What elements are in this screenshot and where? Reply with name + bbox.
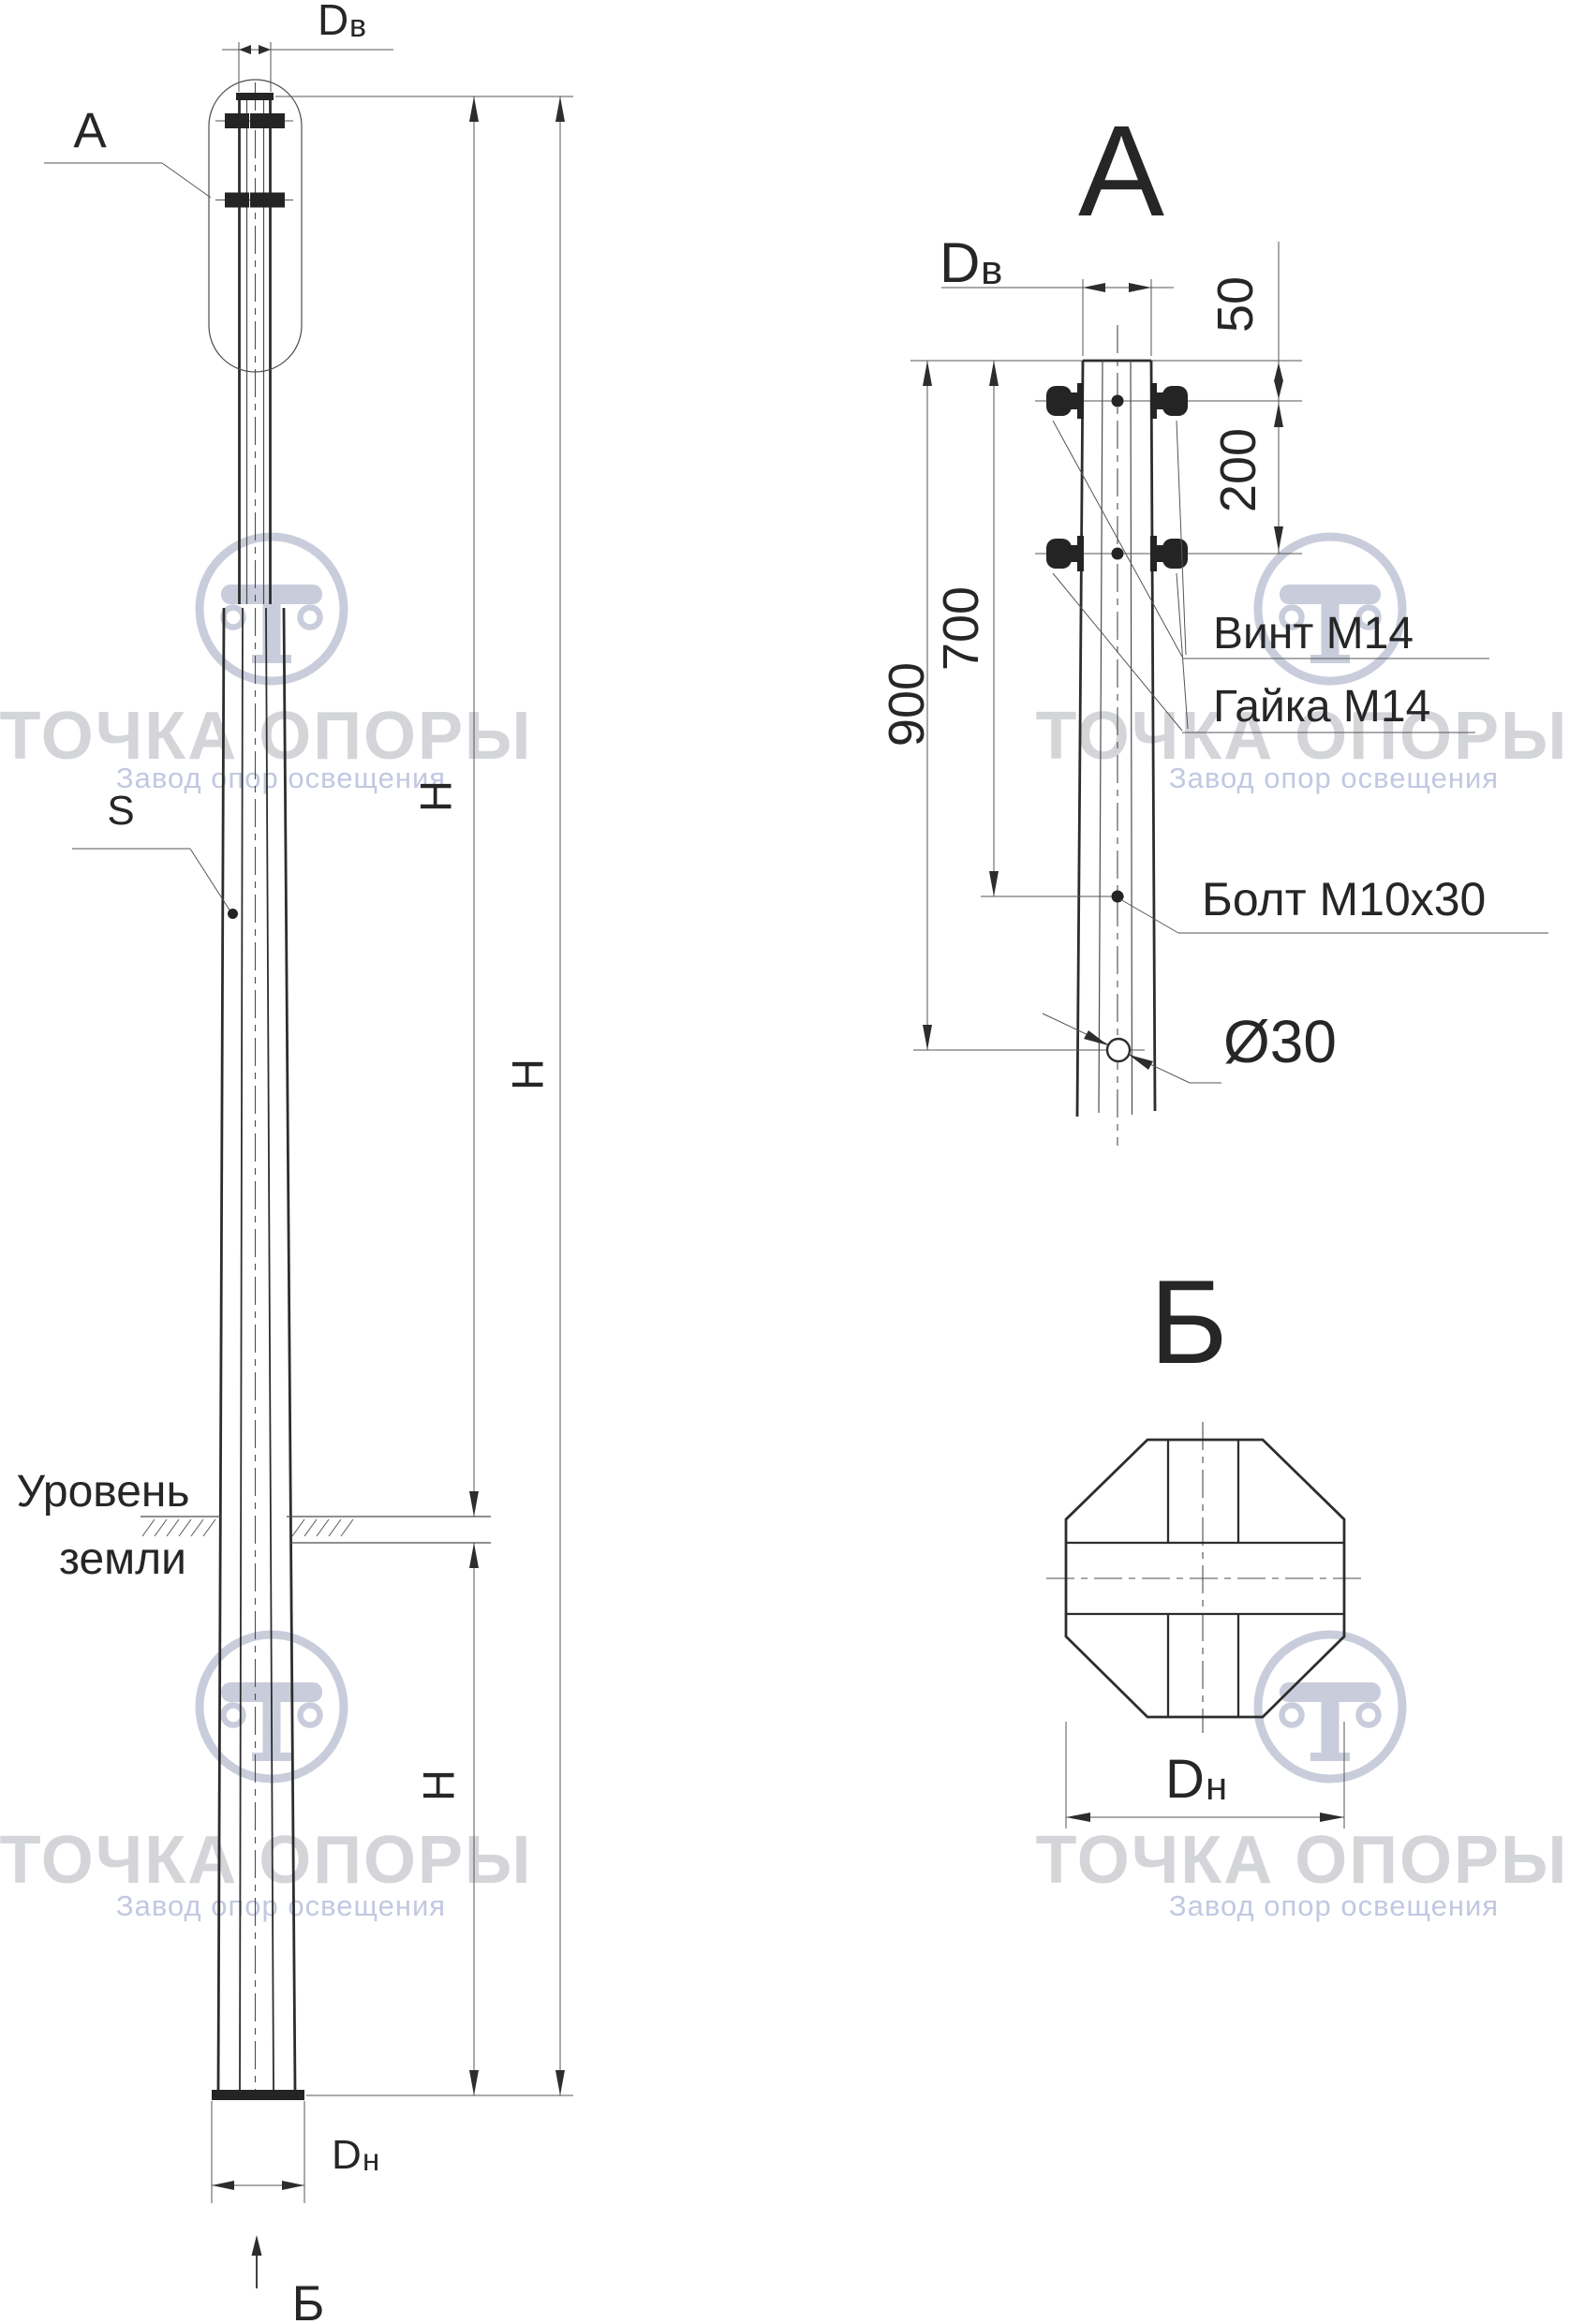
- section-b-reference: Б: [252, 2235, 325, 2324]
- dim-700: 700: [933, 361, 999, 896]
- dim-dn-sub: н: [1206, 1764, 1227, 1808]
- height-label: Н: [410, 780, 460, 812]
- dim-dv-sub: в: [981, 247, 1002, 293]
- dim-bottom-diameter: D н: [212, 2101, 379, 2203]
- dim-dv-base: D: [940, 231, 980, 294]
- pole-base-plate: [212, 2090, 304, 2100]
- terminal-screw-row-1: [1035, 383, 1302, 419]
- watermark-tagline-text: Завод опор освещения: [116, 1889, 446, 1922]
- terminal-screw-row-2: [1035, 536, 1302, 571]
- ground-level: Уровень земли: [17, 1467, 491, 1584]
- brand-logo-icon: [1258, 1635, 1402, 1779]
- bolt-label: Болт М10х30: [1202, 873, 1486, 925]
- hole-diameter-label: Ø30: [1223, 1008, 1337, 1075]
- dim-dn-base: D: [332, 2132, 362, 2178]
- section-ref-label: Б: [292, 2276, 325, 2324]
- pole-elevation-view: А D в S: [17, 0, 573, 2324]
- height-label: Н: [502, 1058, 552, 1090]
- dim-height-below-ground: Н: [413, 1543, 479, 2095]
- dim-dv-base: D: [318, 0, 348, 44]
- detail-a-reference: А: [44, 103, 211, 198]
- dim-top-diameter: D в: [222, 0, 393, 92]
- dim-700-label: 700: [933, 586, 989, 671]
- brand-logo-icon: [200, 537, 344, 681]
- dim-50-label: 50: [1207, 276, 1264, 333]
- detail-a-title: А: [1078, 99, 1164, 244]
- dim-height-above-ground: Н: [410, 96, 479, 1517]
- hole-30: [1107, 1039, 1130, 1061]
- dim-900-label: 900: [879, 662, 935, 747]
- tube-bolts: [215, 113, 293, 208]
- watermark-top-right: ТОЧКА ОПОРЫ Завод опор освещения: [1036, 537, 1569, 794]
- dim-900: 900: [879, 361, 935, 1050]
- watermark-brand-text: ТОЧКА ОПОРЫ: [1036, 1823, 1569, 1898]
- nut-label: Гайка М14: [1213, 682, 1430, 732]
- dim-dn-sub: н: [363, 2142, 379, 2177]
- drawing-canvas: ТОЧКА ОПОРЫ Завод опор освещения ТОЧКА О…: [0, 0, 1569, 2324]
- detail-ref-label: А: [73, 103, 107, 158]
- height-label: Н: [413, 1769, 463, 1801]
- watermarks: ТОЧКА ОПОРЫ Завод опор освещения ТОЧКА О…: [0, 537, 1569, 1922]
- watermark-brand-text: ТОЧКА ОПОРЫ: [0, 1823, 533, 1898]
- detail-a-view: А D в: [879, 99, 1548, 1146]
- ground-label-line1: Уровень: [17, 1467, 190, 1517]
- wall-thickness-callout: S: [72, 788, 238, 919]
- watermark-tagline-text: Завод опор освещения: [1169, 762, 1499, 794]
- detail-dim-top-diameter: D в: [940, 231, 1174, 356]
- dim-dn-base: D: [1165, 1749, 1205, 1810]
- dim-height-overall: Н: [502, 96, 565, 2095]
- ground-label-line2: земли: [59, 1534, 186, 1584]
- screw-nut-callouts: Винт М14 Гайка М14: [1053, 421, 1489, 733]
- watermark-tagline-text: Завод опор освещения: [1169, 1889, 1499, 1922]
- bolt-hole-callout: Болт М10х30: [981, 873, 1548, 933]
- wall-thickness-label: S: [107, 788, 134, 834]
- section-b-title: Б: [1149, 1255, 1227, 1388]
- dim-200-label: 200: [1210, 428, 1266, 512]
- dim-dv-sub: в: [349, 8, 366, 44]
- dim-200: 200: [1210, 403, 1283, 551]
- watermark-tagline-text: Завод опор освещения: [116, 762, 446, 794]
- screw-label: Винт М14: [1213, 609, 1414, 659]
- hole-30-callout: Ø30: [913, 1008, 1337, 1083]
- section-b-view: Б D н: [1046, 1255, 1361, 1828]
